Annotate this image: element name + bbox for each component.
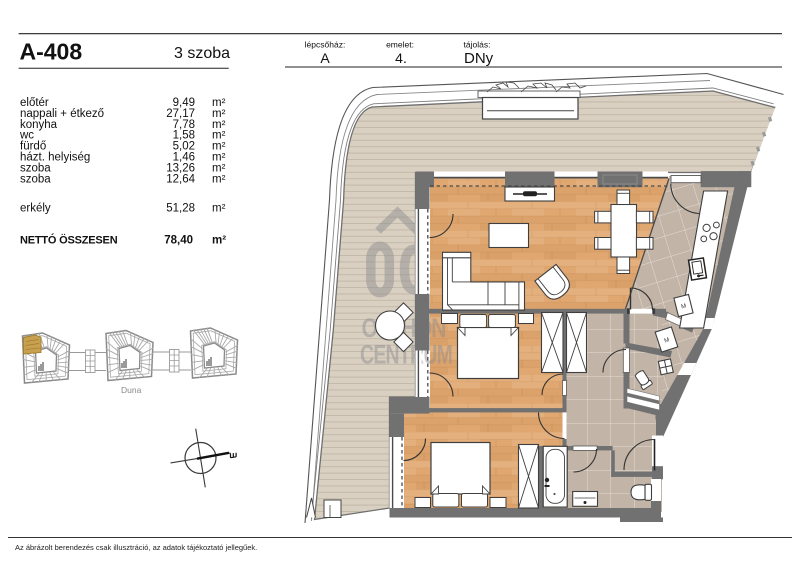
svg-text:tájolás:: tájolás: xyxy=(464,40,491,50)
svg-text:A-408: A-408 xyxy=(20,39,83,65)
svg-text:m²: m² xyxy=(212,173,226,185)
svg-text:A: A xyxy=(320,50,330,66)
svg-text:12,64: 12,64 xyxy=(166,173,195,185)
svg-text:szoba: szoba xyxy=(20,173,51,185)
svg-text:emelet:: emelet: xyxy=(386,40,414,50)
svg-text:erkély: erkély xyxy=(20,203,51,215)
svg-text:Az ábrázolt berendezés csak il: Az ábrázolt berendezés csak illusztráció… xyxy=(15,543,257,552)
svg-text:lépcsőház:: lépcsőház: xyxy=(305,40,346,50)
svg-text:51,28: 51,28 xyxy=(166,203,195,215)
svg-text:78,40: 78,40 xyxy=(164,235,193,247)
svg-text:NETTÓ ÖSSZESEN: NETTÓ ÖSSZESEN xyxy=(20,234,118,247)
svg-text:DNy: DNy xyxy=(464,50,494,67)
svg-text:3 szoba: 3 szoba xyxy=(174,45,230,62)
svg-text:m²: m² xyxy=(212,235,226,247)
svg-text:m²: m² xyxy=(212,203,226,215)
svg-text:Duna: Duna xyxy=(121,385,142,395)
svg-text:4.: 4. xyxy=(395,50,407,66)
